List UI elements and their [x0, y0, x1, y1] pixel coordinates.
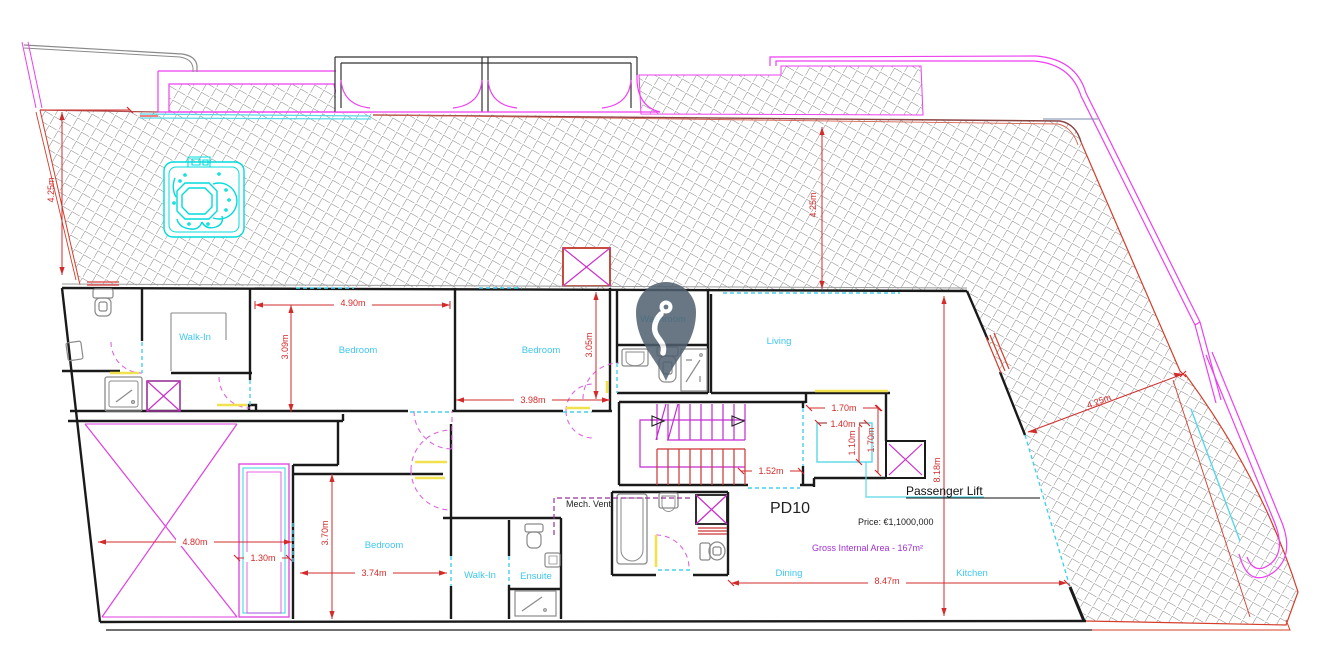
svg-text:Bedroom: Bedroom — [522, 345, 561, 356]
svg-text:1.40m: 1.40m — [830, 419, 855, 429]
svg-text:4.25m: 4.25m — [808, 192, 818, 217]
svg-text:4.25m: 4.25m — [46, 177, 56, 202]
svg-text:1.70m: 1.70m — [831, 403, 856, 413]
svg-text:Living: Living — [767, 336, 792, 347]
svg-text:8.18m: 8.18m — [932, 457, 942, 482]
svg-text:4.90m: 4.90m — [340, 298, 365, 308]
svg-text:PD10: PD10 — [770, 500, 810, 517]
svg-text:1.10m: 1.10m — [847, 430, 857, 455]
svg-text:3.70m: 3.70m — [320, 520, 330, 545]
svg-text:3.98m: 3.98m — [520, 395, 545, 405]
svg-text:Walk-In: Walk-In — [464, 570, 496, 581]
svg-text:8.47m: 8.47m — [874, 576, 899, 586]
svg-text:3.09m: 3.09m — [280, 334, 290, 359]
svg-text:3.74m: 3.74m — [361, 568, 386, 578]
svg-text:1.52m: 1.52m — [758, 466, 783, 476]
svg-text:Gross Internal Area - 167m²: Gross Internal Area - 167m² — [812, 543, 923, 553]
svg-text:Dining: Dining — [776, 568, 803, 579]
svg-text:Walk-In: Walk-In — [179, 332, 211, 343]
svg-text:Bedroom: Bedroom — [365, 540, 404, 551]
svg-text:Passenger Lift: Passenger Lift — [906, 484, 983, 498]
svg-text:Kitchen: Kitchen — [956, 568, 988, 579]
svg-text:1.70m: 1.70m — [866, 427, 876, 452]
svg-text:Mech. Vent.: Mech. Vent. — [566, 499, 614, 509]
svg-text:Ensuite: Ensuite — [520, 571, 552, 582]
svg-text:4.80m: 4.80m — [182, 537, 207, 547]
svg-text:Price: €1,1000,000: Price: €1,1000,000 — [858, 517, 934, 527]
svg-text:1.30m: 1.30m — [250, 553, 275, 563]
svg-text:3.05m: 3.05m — [584, 332, 594, 357]
svg-text:Bedroom: Bedroom — [339, 345, 378, 356]
